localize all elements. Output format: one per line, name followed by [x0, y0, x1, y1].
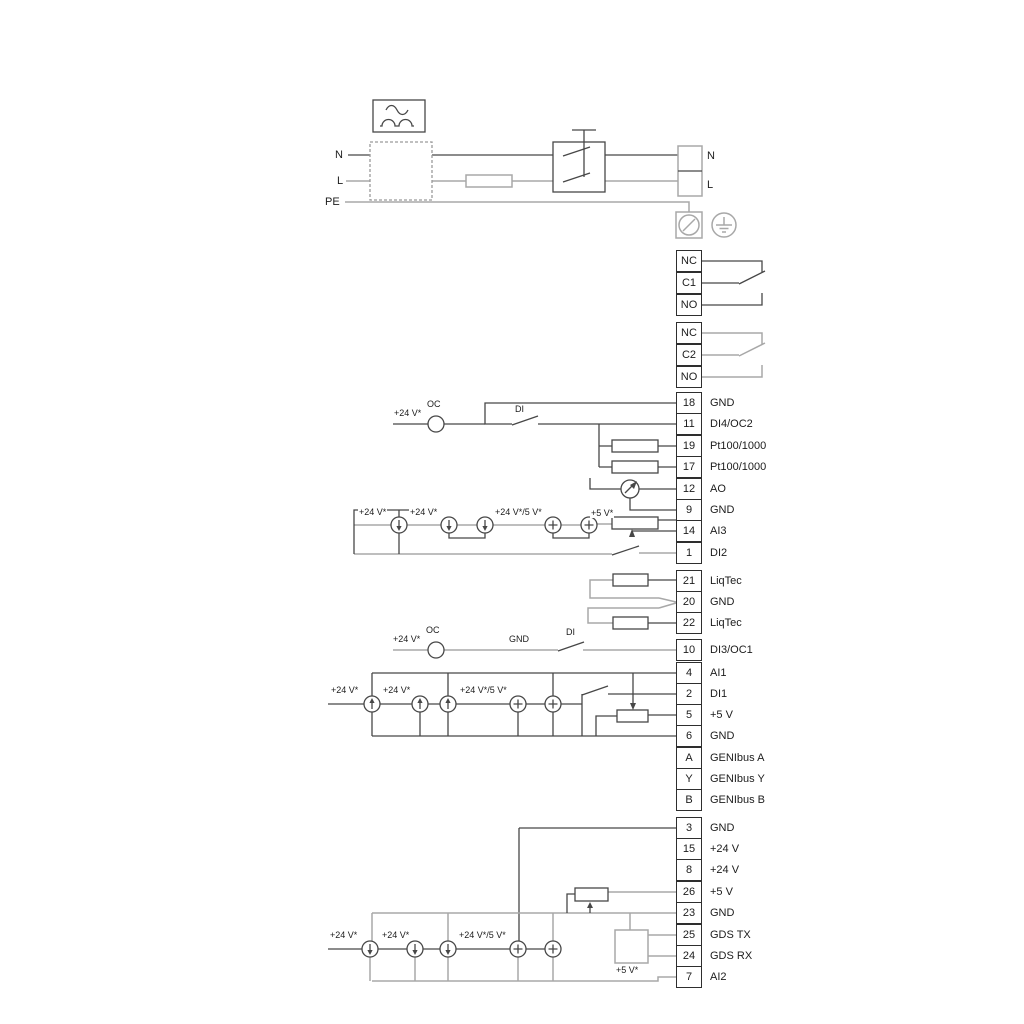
terminal-cell-7: 7 [676, 966, 702, 988]
terminal-label-2: DI1 [710, 683, 727, 705]
ann-oc2-24v: +24 V* [393, 408, 422, 418]
fuse-symbol [466, 175, 512, 187]
terminal-label-23: GND [710, 902, 734, 924]
relay1-wiring [702, 261, 765, 305]
ann-ai2-5v: +5 V* [615, 965, 639, 975]
terminal-cell-5: 5 [676, 704, 702, 726]
terminal-cell-23: 23 [676, 902, 702, 924]
label-n-right: N [707, 150, 715, 162]
terminal-cell-25: 25 [676, 924, 702, 946]
terminal-label-5: +5 V [710, 704, 733, 726]
terminal-cell-6: 6 [676, 725, 702, 747]
mains-terminal [678, 146, 702, 196]
terminal-label-22: LiqTec [710, 612, 742, 634]
terminal-cell-12: 12 [676, 478, 702, 500]
di4-oc2-circuit [393, 403, 676, 467]
terminal-cell-9: 9 [676, 499, 702, 521]
terminal-cell-1: 1 [676, 542, 702, 564]
terminal-cell-10: 10 [676, 639, 702, 661]
ai1-circuit [328, 673, 676, 736]
terminal-label-B: GENIbus B [710, 789, 765, 811]
terminal-label-15: +24 V [710, 838, 739, 860]
terminal-cell-3: 3 [676, 817, 702, 839]
terminal-cell-no2: NO [676, 366, 702, 388]
terminal-cell-c2: C2 [676, 344, 702, 366]
power-wires [345, 155, 689, 212]
terminal-label-1: DI2 [710, 542, 727, 564]
terminal-cell-8: 8 [676, 859, 702, 881]
ann-ai1-24v-a: +24 V* [330, 685, 359, 695]
terminal-label-18: GND [710, 392, 734, 414]
terminal-cell-17: 17 [676, 456, 702, 478]
label-n-left: N [335, 149, 343, 161]
ann-ai1-245v: +24 V*/5 V* [459, 685, 508, 695]
ann-ai2-24v-a: +24 V* [329, 930, 358, 940]
terminal-label-8: +24 V [710, 859, 739, 881]
terminal-cell-22: 22 [676, 612, 702, 634]
ann-oc1-24v: +24 V* [392, 634, 421, 644]
pt100-sensors [599, 440, 676, 473]
terminal-label-11: DI4/OC2 [710, 413, 753, 435]
terminal-cell-B: B [676, 789, 702, 811]
label-l-right: L [707, 179, 713, 191]
ann-oc2-di: DI [514, 404, 525, 414]
terminal-cell-A: A [676, 747, 702, 769]
ann-ai1-24v-b: +24 V* [382, 685, 411, 695]
wiring-diagram: N L PE N L NC C1 NO NC C2 NO 18 GND 11 D… [0, 0, 1024, 1024]
main-switch [553, 130, 605, 192]
ann-ai3-24v-b2: +24 V* [409, 507, 438, 517]
terminal-cell-15: 15 [676, 838, 702, 860]
ann-oc2-oc: OC [426, 399, 442, 409]
terminal-label-26: +5 V [710, 881, 733, 903]
terminal-label-9: GND [710, 499, 734, 521]
terminal-label-20: GND [710, 591, 734, 613]
terminal-label-21: LiqTec [710, 570, 742, 592]
terminal-cell-26: 26 [676, 881, 702, 903]
terminal-cell-4: 4 [676, 662, 702, 684]
terminal-label-7: AI2 [710, 966, 727, 988]
label-pe: PE [325, 196, 340, 208]
terminal-cell-18: 18 [676, 392, 702, 414]
ann-ai3-245v: +24 V*/5 V* [494, 507, 543, 517]
ann-ai2-245v: +24 V*/5 V* [458, 930, 507, 940]
ann-ai3-24v-a: +24 V* [358, 507, 387, 517]
terminal-label-17: Pt100/1000 [710, 456, 766, 478]
earth-ground-icon [712, 213, 736, 237]
rcd-box [370, 142, 432, 200]
terminal-label-25: GDS TX [710, 924, 751, 946]
terminal-cell-14: 14 [676, 520, 702, 542]
terminal-label-19: Pt100/1000 [710, 435, 766, 457]
label-l-left: L [337, 175, 343, 187]
pe-screw-terminal [676, 212, 702, 238]
terminal-label-A: GENIbus A [710, 747, 764, 769]
di3-oc1-circuit [393, 642, 676, 658]
terminal-cell-19: 19 [676, 435, 702, 457]
ann-ai3-5v: +5 V* [590, 508, 614, 518]
ao-meter [590, 478, 676, 510]
terminal-cell-2: 2 [676, 683, 702, 705]
terminal-label-24: GDS RX [710, 945, 752, 967]
terminal-cell-no1: NO [676, 294, 702, 316]
terminal-cell-11: 11 [676, 413, 702, 435]
terminal-label-4: AI1 [710, 662, 727, 684]
rectifier-symbol [373, 100, 425, 132]
ann-oc1-oc: OC [425, 625, 441, 635]
terminal-label-12: AO [710, 478, 726, 500]
terminal-cell-nc2: NC [676, 322, 702, 344]
terminal-label-10: DI3/OC1 [710, 639, 753, 661]
relay2-wiring [702, 333, 765, 377]
terminal-label-6: GND [710, 725, 734, 747]
terminal-cell-20: 20 [676, 591, 702, 613]
terminal-label-14: AI3 [710, 520, 727, 542]
liqtec-sensors [588, 574, 676, 629]
terminal-cell-nc1: NC [676, 250, 702, 272]
terminal-cell-24: 24 [676, 945, 702, 967]
ann-oc1-gnd: GND [508, 634, 530, 644]
terminal-cell-21: 21 [676, 570, 702, 592]
terminal-label-3: GND [710, 817, 734, 839]
terminal-label-Y: GENIbus Y [710, 768, 765, 790]
terminal-cell-Y: Y [676, 768, 702, 790]
ai2-gds-circuit [328, 828, 676, 981]
ann-oc1-di: DI [565, 627, 576, 637]
terminal-cell-c1: C1 [676, 272, 702, 294]
ann-ai2-24v-b: +24 V* [381, 930, 410, 940]
